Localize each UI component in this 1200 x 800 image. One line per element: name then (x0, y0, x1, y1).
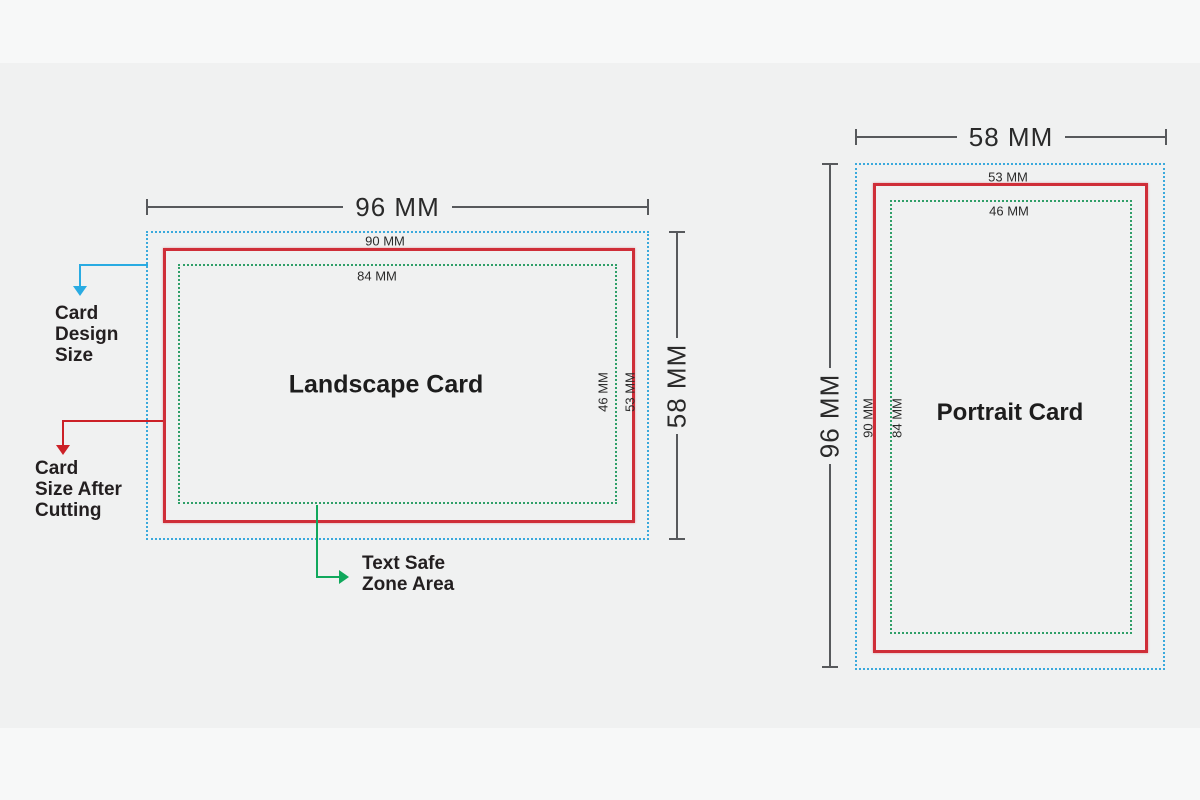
safe-zone-leader-line (316, 505, 318, 578)
portrait-height-label: 96 MM (815, 373, 846, 457)
dimension-tick (669, 538, 685, 540)
portrait-width-dimension: 58 MM (855, 123, 1167, 151)
design-size-label: Card Design Size (55, 303, 118, 366)
portrait-width-label: 58 MM (969, 122, 1053, 153)
dimension-line (676, 233, 678, 338)
landscape-height-label: 58 MM (662, 343, 693, 427)
landscape-width-dimension: 96 MM (146, 193, 649, 221)
cut-size-arrowhead-icon (56, 445, 70, 455)
dimension-line (452, 206, 647, 208)
portrait-height-dimension: 96 MM (816, 163, 844, 668)
portrait-cut-height-label: 90 MM (861, 398, 876, 438)
landscape-cut-height-label: 53 MM (623, 372, 638, 412)
dimension-line (676, 434, 678, 539)
portrait-cut-width-label: 53 MM (988, 170, 1028, 185)
dimension-line (857, 136, 957, 138)
dimension-line (829, 464, 831, 667)
cut-size-leader-line (62, 420, 64, 446)
safe-zone-arrowhead-icon (339, 570, 349, 584)
safe-zone-label: Text Safe Zone Area (362, 553, 454, 595)
dimension-line (148, 206, 343, 208)
design-size-leader-line (80, 264, 148, 266)
portrait-height-label-box: 96 MM (816, 368, 844, 464)
safe-zone-leader-line (316, 576, 341, 578)
card-size-diagram: 96 MM 90 MM 84 MM Landscape Card 46 MM 5… (0, 0, 1200, 800)
design-size-leader-line (79, 264, 81, 287)
landscape-safe-width-label: 84 MM (357, 269, 397, 284)
landscape-safe-height-label: 46 MM (596, 372, 611, 412)
dimension-line (1065, 136, 1165, 138)
landscape-height-label-box: 58 MM (663, 338, 691, 434)
dimension-tick (1165, 129, 1167, 145)
dimension-line (829, 165, 831, 368)
portrait-title: Portrait Card (937, 399, 1084, 427)
portrait-safe-width-label: 46 MM (989, 204, 1029, 219)
dimension-tick (647, 199, 649, 215)
portrait-safe-height-label: 84 MM (890, 398, 905, 438)
landscape-height-dimension: 58 MM (663, 231, 691, 540)
dimension-tick (822, 666, 838, 668)
cut-size-label: Card Size After Cutting (35, 458, 122, 521)
cut-size-leader-line (63, 420, 163, 422)
landscape-width-label: 96 MM (355, 192, 439, 223)
landscape-cut-width-label: 90 MM (365, 234, 405, 249)
design-size-arrowhead-icon (73, 286, 87, 296)
landscape-title: Landscape Card (289, 371, 484, 400)
